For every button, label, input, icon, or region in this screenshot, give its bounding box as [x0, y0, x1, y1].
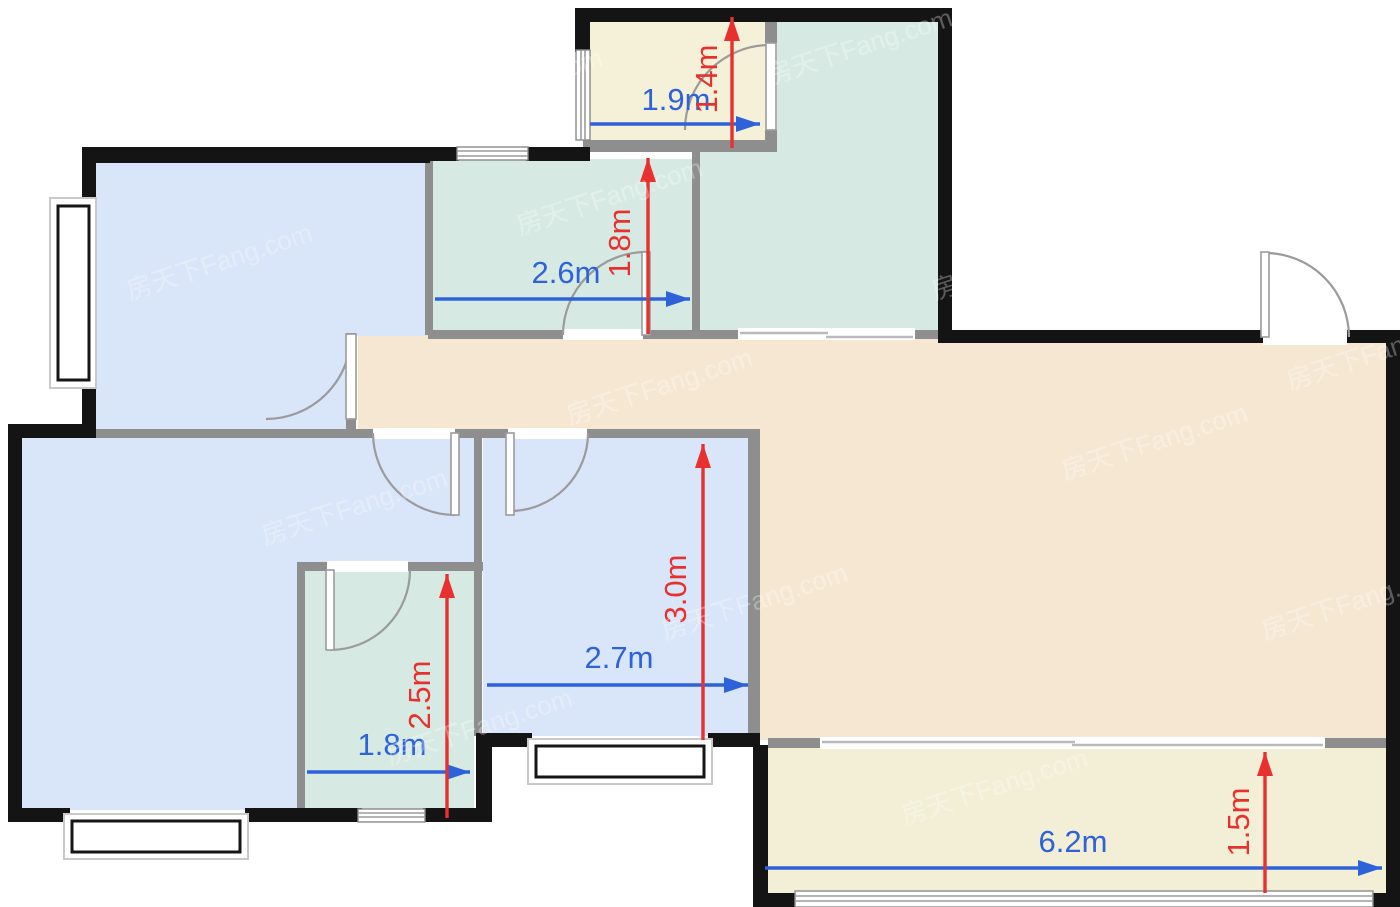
- bay-window-bedroom-middle: [528, 739, 712, 784]
- dimension-label-kitchen-width: 2.6m: [532, 255, 601, 290]
- bay-window-bottom-left: [64, 814, 248, 859]
- window-kitchen-top: [457, 147, 528, 160]
- sliding-door-bathroom-top: [738, 328, 915, 340]
- dimension-label-balcony-width: 6.2m: [1039, 824, 1108, 859]
- dimension-label-storage-depth: 1.4m: [689, 45, 724, 114]
- floorplan-page: 1.9m1.4m2.6m1.8m2.7m3.0m1.8m2.5m6.2m1.5m…: [0, 0, 1400, 907]
- dimension-label-balcony-depth: 1.5m: [1221, 788, 1256, 857]
- dimension-label-kitchen-depth: 1.8m: [602, 209, 637, 278]
- floorplan-svg: 1.9m1.4m2.6m1.8m2.7m3.0m1.8m2.5m6.2m1.5m…: [0, 0, 1400, 907]
- door-entrance: [1261, 252, 1349, 337]
- window-balcony-glass: [795, 891, 1373, 907]
- bay-window-top-left: [50, 198, 96, 388]
- watermark-text: 房天下Fang.com: [1138, 122, 1331, 210]
- watermark-text: 房天下Fang.com: [928, 217, 1121, 305]
- dimension-label-bedroom-width: 2.7m: [585, 640, 654, 675]
- window-bathroom-bottom: [358, 809, 425, 822]
- room-bedroom-middle: [483, 436, 752, 736]
- dimension-label-bathroom-depth: 2.5m: [402, 661, 437, 730]
